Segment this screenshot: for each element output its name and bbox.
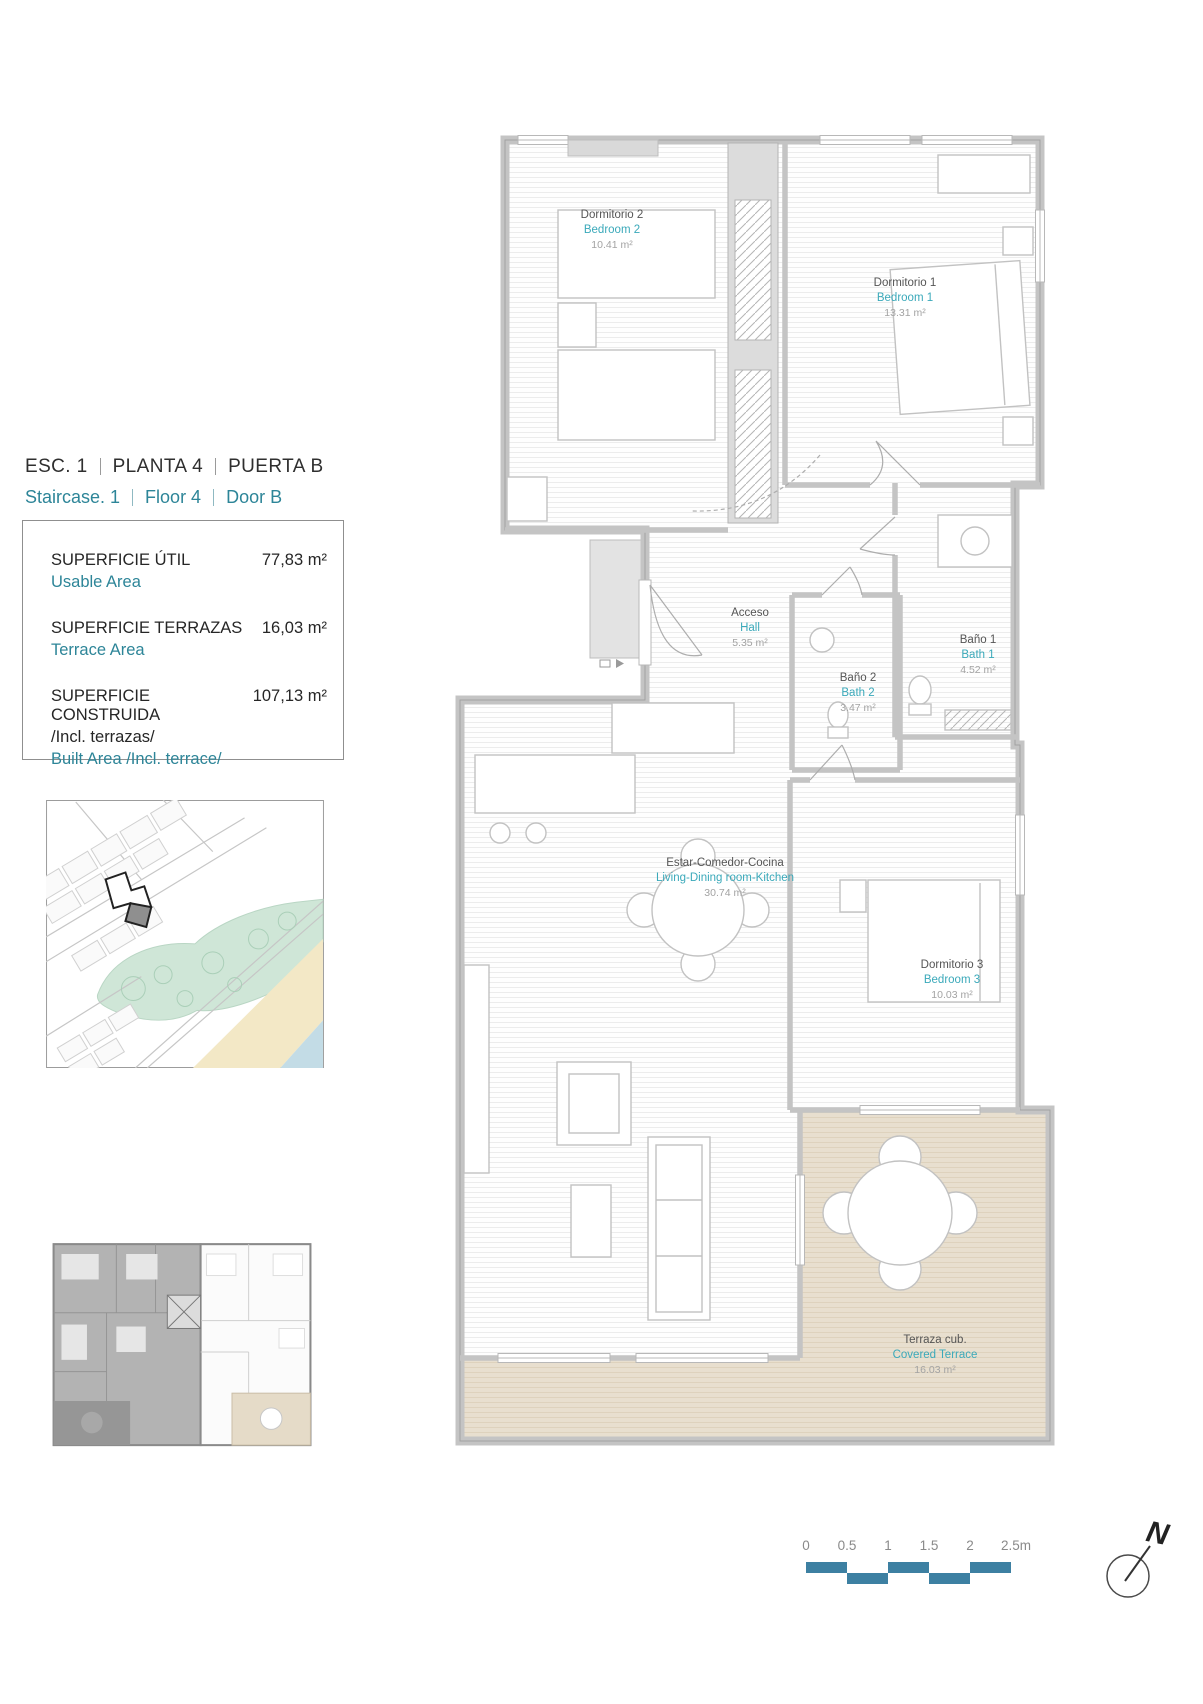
svg-text:Dormitorio 2: Dormitorio 2 <box>581 209 644 221</box>
svg-text:30.74 m²: 30.74 m² <box>704 887 746 899</box>
section-marker-icon <box>600 659 624 668</box>
built-area-label-en: Built Area /Incl. terrace/ <box>51 750 327 769</box>
svg-text:4.52 m²: 4.52 m² <box>960 664 996 676</box>
svg-text:Estar-Comedor-Cocina: Estar-Comedor-Cocina <box>666 857 784 869</box>
svg-text:Dormitorio 1: Dormitorio 1 <box>874 277 937 289</box>
scale-label: 0 <box>802 1538 810 1553</box>
stair-hatch-upper <box>735 200 771 340</box>
scale-label: 0.5 <box>838 1538 857 1553</box>
surface-areas-box: SUPERFICIE ÚTIL 77,83 m² Usable Area SUP… <box>22 520 344 760</box>
nightstand <box>1003 227 1033 255</box>
entry-opening <box>639 580 651 665</box>
built-area-label: SUPERFICIE CONSTRUIDA <box>51 687 245 725</box>
scale-label: 2.5m <box>1001 1538 1031 1553</box>
stair-shaft <box>728 143 778 523</box>
wardrobe <box>507 477 547 521</box>
scale-bar-inner: 0 0.5 1 1.5 2 2.5m <box>806 1538 1011 1594</box>
toilet-tank <box>909 704 931 715</box>
coffee-table <box>571 1185 611 1257</box>
plan-header: ESC. 1PLANTA 4PUERTA B Staircase. 1Floor… <box>25 456 324 508</box>
toilet-tank <box>828 727 848 738</box>
room-label-bath-2: Baño 2 Bath 2 3.47 m² <box>840 672 877 714</box>
kitchen-island <box>475 755 635 813</box>
spacer <box>51 592 327 619</box>
svg-text:Living-Dining room-Kitchen: Living-Dining room-Kitchen <box>656 872 794 884</box>
basin <box>810 628 834 652</box>
divider <box>100 458 101 475</box>
svg-text:10.03 m²: 10.03 m² <box>931 989 973 1001</box>
sideboard <box>464 965 489 1173</box>
svg-text:3.47 m²: 3.47 m² <box>840 702 876 714</box>
built-area-row: SUPERFICIE CONSTRUIDA 107,13 m² <box>51 687 327 725</box>
north-arrow-icon: N <box>1092 1498 1202 1618</box>
staircase-en: Staircase. 1 <box>25 487 120 507</box>
svg-text:13.31 m²: 13.31 m² <box>884 307 926 319</box>
svg-text:Bedroom 2: Bedroom 2 <box>584 224 640 236</box>
wardrobe <box>938 155 1030 193</box>
svg-text:Acceso: Acceso <box>731 607 769 619</box>
spacer <box>51 660 327 687</box>
terrace-area-value: 16,03 m² <box>262 619 327 638</box>
svg-text:Baño 1: Baño 1 <box>960 634 996 646</box>
staircase-es: ESC. 1 <box>25 456 88 477</box>
stool <box>490 823 510 843</box>
plan-title-es: ESC. 1PLANTA 4PUERTA B <box>25 456 324 478</box>
stair-landing <box>590 540 646 658</box>
door-en: Door B <box>226 487 282 507</box>
nightstand <box>840 880 866 912</box>
svg-text:Hall: Hall <box>740 622 760 634</box>
built-area-value: 107,13 m² <box>253 687 327 725</box>
svg-text:Covered Terrace: Covered Terrace <box>893 1349 978 1361</box>
basin <box>961 527 989 555</box>
toilet <box>909 676 931 704</box>
key-plan <box>45 1205 320 1450</box>
svg-text:Bedroom 1: Bedroom 1 <box>877 292 933 304</box>
terrace-area-row: SUPERFICIE TERRAZAS 16,03 m² <box>51 619 327 638</box>
balcony-recess <box>568 140 658 156</box>
floorplan-sheet: ESC. 1PLANTA 4PUERTA B Staircase. 1Floor… <box>0 0 1203 1704</box>
scale-bar: 0 0.5 1 1.5 2 2.5m <box>798 1538 1028 1594</box>
scale-segment <box>806 1562 847 1573</box>
terrace-area-label: SUPERFICIE TERRAZAS <box>51 619 242 638</box>
svg-text:Bedroom 3: Bedroom 3 <box>924 974 980 986</box>
kitchen-counter <box>612 703 734 753</box>
keyplan-adjacent-terrace-table <box>81 1412 103 1434</box>
scale-segment <box>929 1573 970 1584</box>
floor-en: Floor 4 <box>145 487 201 507</box>
nightstand <box>558 303 596 347</box>
radiator <box>945 710 1011 730</box>
bed <box>558 350 715 440</box>
keyplan-terrace-table <box>260 1408 282 1430</box>
usable-area-row: SUPERFICIE ÚTIL 77,83 m² <box>51 551 327 570</box>
terrace-table <box>848 1161 952 1265</box>
svg-text:16.03 m²: 16.03 m² <box>914 1364 956 1376</box>
svg-text:Bath 2: Bath 2 <box>841 687 874 699</box>
terrace-area-label-en: Terrace Area <box>51 641 327 660</box>
divider <box>213 489 214 506</box>
stool <box>526 823 546 843</box>
armchair-seat <box>569 1074 619 1133</box>
usable-area-label-en: Usable Area <box>51 573 327 592</box>
scale-segment <box>970 1562 1011 1573</box>
svg-text:Dormitorio 3: Dormitorio 3 <box>921 959 984 971</box>
svg-text:Terraza cub.: Terraza cub. <box>903 1334 966 1346</box>
usable-area-value: 77,83 m² <box>262 551 327 570</box>
plan-title-en: Staircase. 1Floor 4Door B <box>25 487 324 508</box>
divider <box>215 458 216 475</box>
scale-label: 1 <box>884 1538 892 1553</box>
svg-text:10.41 m²: 10.41 m² <box>591 239 633 251</box>
nightstand <box>1003 417 1033 445</box>
sofa-seat <box>656 1145 702 1312</box>
north-label: N <box>1143 1515 1172 1552</box>
room-label-bath-1: Baño 1 Bath 1 4.52 m² <box>960 634 997 676</box>
scale-label: 2 <box>966 1538 974 1553</box>
scale-label: 1.5 <box>920 1538 939 1553</box>
usable-area-label: SUPERFICIE ÚTIL <box>51 551 190 570</box>
scale-segment <box>888 1562 929 1573</box>
door-es: PUERTA B <box>228 456 323 477</box>
floor-es: PLANTA 4 <box>113 456 204 477</box>
compass-needle <box>1125 1546 1150 1581</box>
svg-text:5.35 m²: 5.35 m² <box>732 637 768 649</box>
site-location-map <box>46 800 324 1068</box>
stair-hatch-lower <box>735 370 771 518</box>
svg-text:Bath 1: Bath 1 <box>961 649 994 661</box>
divider <box>132 489 133 506</box>
scale-segment <box>847 1573 888 1584</box>
svg-text:Baño 2: Baño 2 <box>840 672 876 684</box>
built-area-note: /Incl. terrazas/ <box>51 728 327 747</box>
apartment-floor-plan: Dormitorio 2 Bedroom 2 10.41 m² Dormitor… <box>440 115 1060 1455</box>
